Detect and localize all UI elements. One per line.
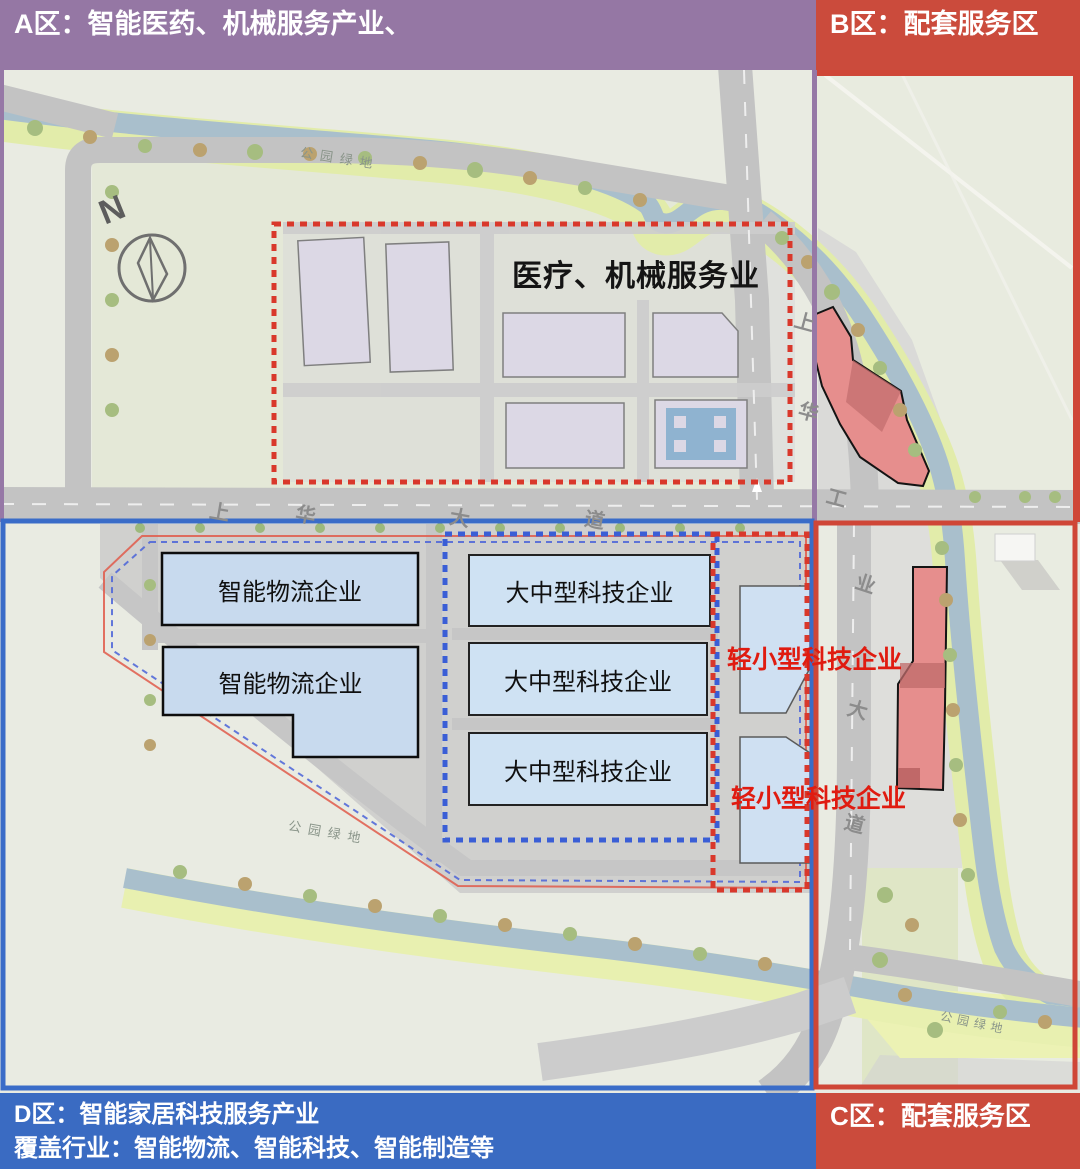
- building-a1: [298, 237, 370, 365]
- zone-d-banner: D区：智能家居科技服务产业 覆盖行业：智能物流、智能科技、智能制造等: [0, 1093, 816, 1169]
- zone-c-banner: C区：配套服务区: [816, 1093, 1080, 1169]
- building-a3: [503, 313, 625, 377]
- logistics-box-2-label: 智能物流企业: [163, 647, 418, 715]
- zone-b-top-border: [817, 70, 1080, 76]
- tech-small-label-2: 轻小型科技企业: [731, 779, 906, 815]
- zone-d-banner-line2: 覆盖行业：智能物流、智能科技、智能制造等: [14, 1132, 816, 1166]
- building-a6-courtyard: [666, 408, 736, 460]
- zone-a-b-divider: [812, 70, 817, 522]
- tech-small-label-1: 轻小型科技企业: [727, 640, 902, 676]
- logistics-box-1-label: 智能物流企业: [162, 553, 418, 625]
- tech-large-box-2-label: 大中型科技企业: [469, 643, 707, 715]
- zone-d-banner-line1: D区：智能家居科技服务产业: [14, 1098, 816, 1132]
- building-a4: [653, 313, 738, 377]
- zone-c-banner-text: C区：配套服务区: [830, 1100, 1080, 1134]
- zone-b-right-border: [1073, 70, 1080, 522]
- zone-a-banner: A区：智能医药、机械服务产业、: [0, 0, 816, 70]
- medical-zone-label: 医疗、机械服务业: [512, 251, 772, 295]
- site-plan-page: 医疗、机械服务业 智能物流企业 智能物流企业 大中型科技企业 大中型科技企业 大…: [0, 0, 1080, 1169]
- building-a2: [386, 242, 453, 372]
- building-a5: [506, 403, 624, 468]
- zone-b-banner-text: B区：配套服务区: [830, 7, 1080, 42]
- zone-a-banner-text: A区：智能医药、机械服务产业、: [14, 7, 816, 42]
- zone-b-banner: B区：配套服务区: [816, 0, 1080, 70]
- tech-large-box-1-label: 大中型科技企业: [469, 555, 710, 626]
- zone-a-left-border: [0, 70, 4, 522]
- tech-large-box-3-label: 大中型科技企业: [469, 733, 707, 805]
